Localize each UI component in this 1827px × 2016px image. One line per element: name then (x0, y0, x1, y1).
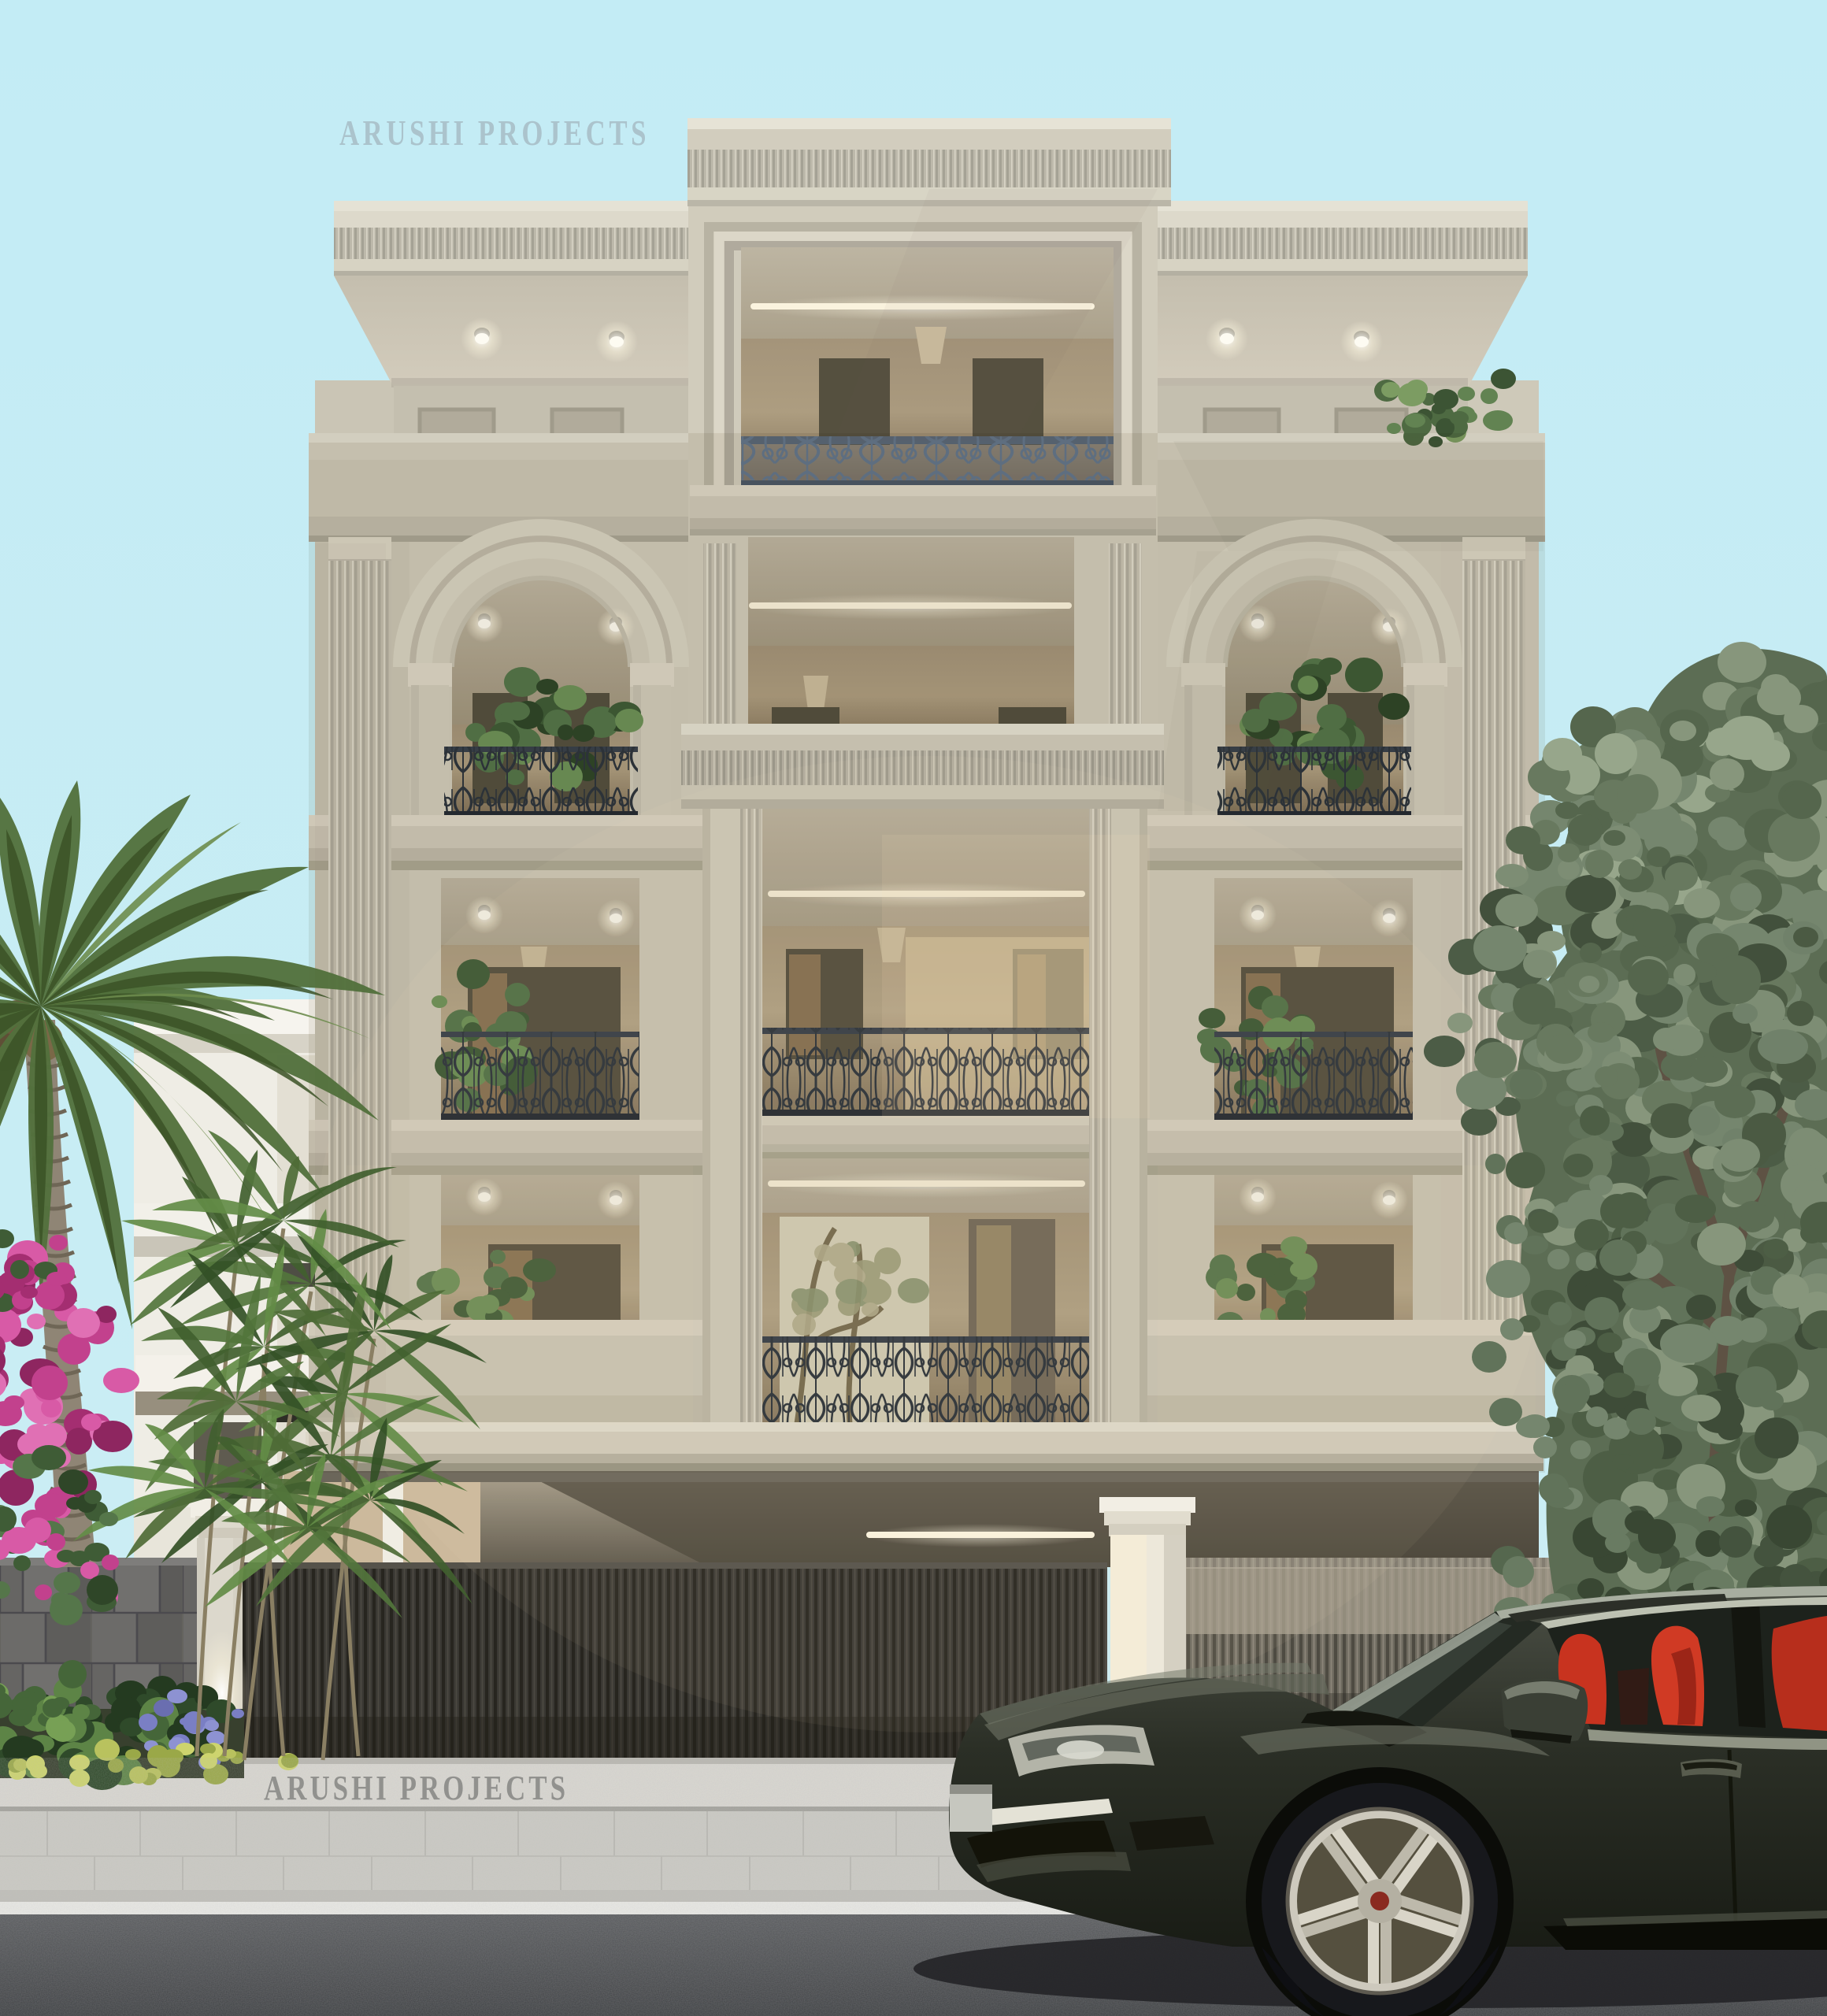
svg-text:ARUSHI PROJECTS: ARUSHI PROJECTS (264, 1769, 569, 1807)
svg-text:ARUSHI PROJECTS: ARUSHI PROJECTS (339, 113, 650, 153)
